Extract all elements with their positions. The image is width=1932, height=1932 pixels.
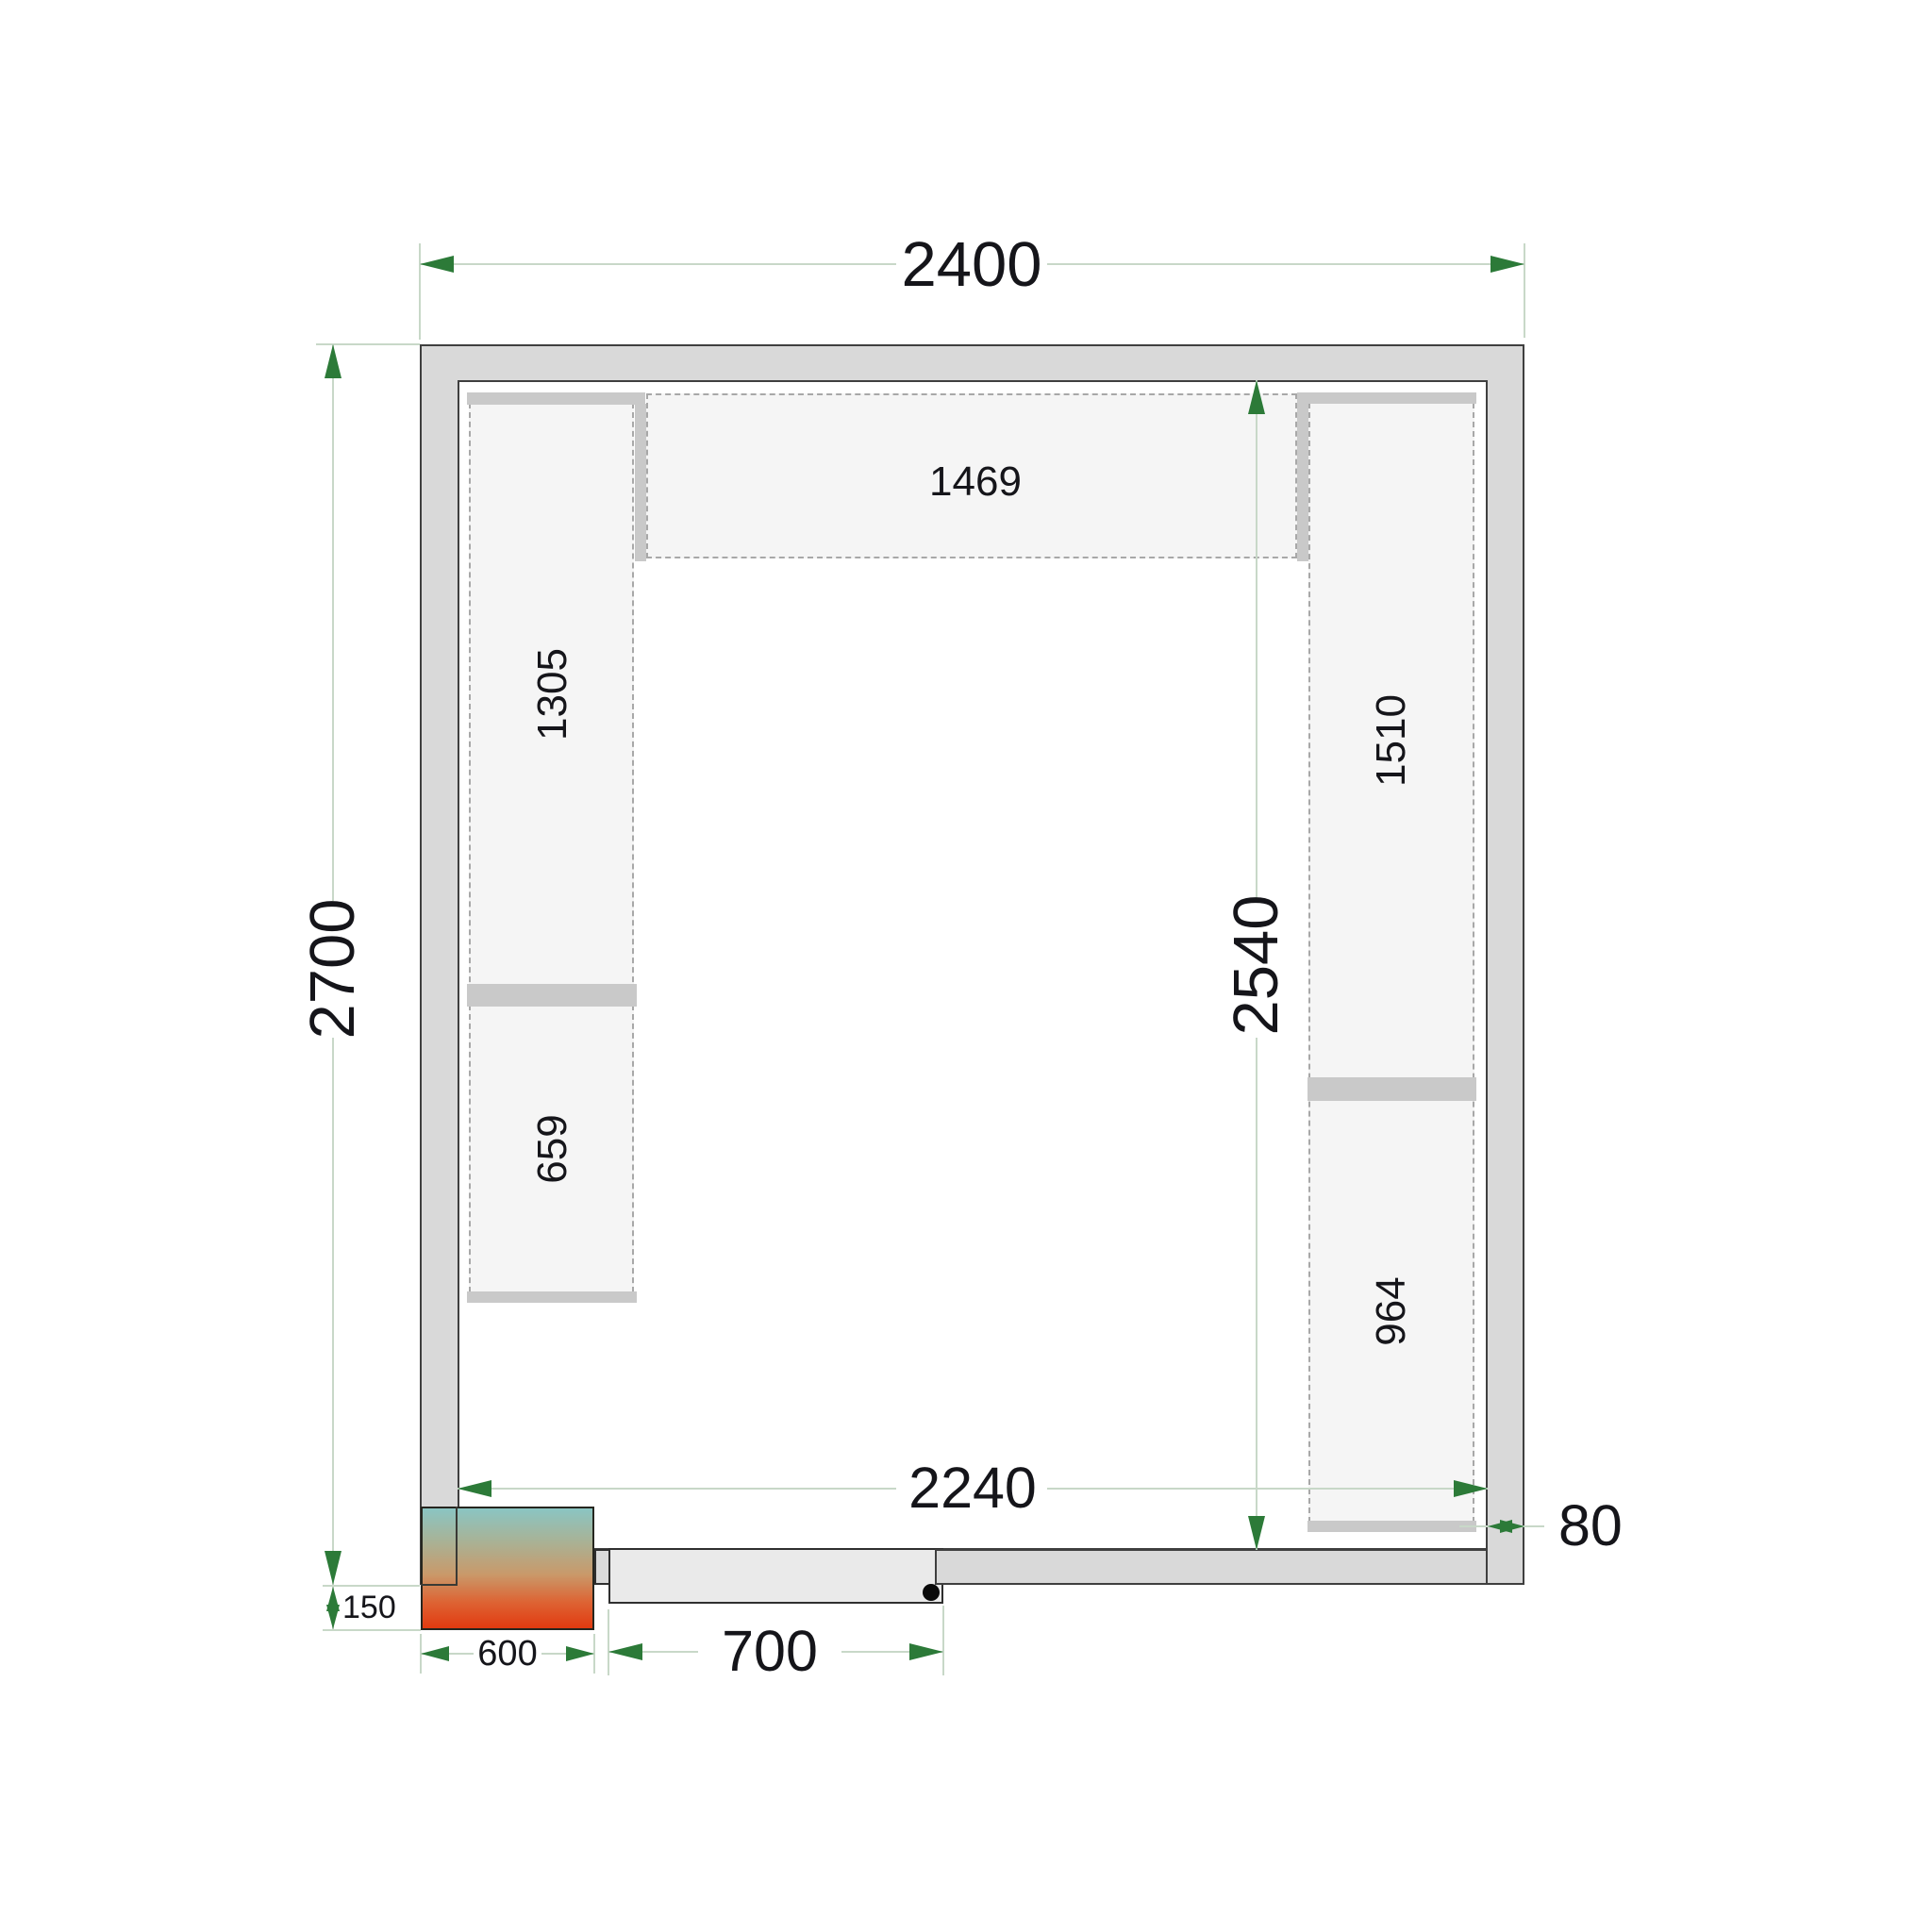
shelf-end-cap-right-top [1297,392,1476,404]
dim-2400-line-b [1047,263,1524,265]
wall-outline-over-unit-horizontal [421,1584,457,1586]
shelf-end-cap-left-bottom [467,1291,637,1303]
dim-700-label: 700 [675,1619,864,1683]
dim-2240-line-a [458,1488,896,1490]
shelf-divider-right [1307,1077,1476,1101]
door-leaf [608,1548,943,1604]
shelf-end-cap-top-left [635,404,646,561]
dim-600-label: 600 [460,1636,555,1672]
dim-2240-arrow-right [1454,1480,1488,1497]
dim-600-arrow-right [566,1646,594,1661]
shelf-end-cap-right-bottom [1307,1521,1476,1532]
dim-2700-line-b [332,1038,334,1585]
dim-2540-arrow-top [1248,380,1265,414]
dim-150-arrow-bottom [326,1605,340,1629]
shelf-right-upper-label: 1510 [1371,646,1412,835]
dim-80-arrow-right [1500,1520,1524,1533]
dim-2240-line-b [1047,1488,1488,1490]
shelf-right-lower-label: 964 [1371,1217,1412,1406]
wall-outline-over-unit-vertical [456,1507,458,1586]
shelf-divider-left [467,984,637,1007]
dim-2540-arrow-bottom [1248,1516,1265,1550]
dim-150-ext-bottom [323,1629,421,1631]
dim-2700-line-a [332,344,334,901]
dim-2240-arrow-left [458,1480,491,1497]
dim-2700-arrow-top [325,344,341,378]
dim-700-arrow-right [909,1643,943,1660]
shelf-left-lower-label: 659 [532,1055,574,1243]
shelf-left-upper-label: 1305 [532,600,574,789]
dim-2700-arrow-bottom [325,1551,341,1585]
cold-room-floor-plan: 1469 1305 659 1510 964 2400 2700 2540 22… [0,0,1932,1932]
dim-2400-arrow-left [420,256,454,273]
shelf-end-cap-top-right [1297,392,1308,561]
dim-150-label: 150 [342,1591,408,1624]
shelf-top-label: 1469 [881,461,1070,503]
cooling-unit [421,1507,594,1630]
dim-2540-line-b [1256,1038,1257,1550]
dim-80-label: 80 [1558,1493,1681,1557]
dim-2540-line-a [1256,380,1257,901]
dim-2400-arrow-right [1491,256,1524,273]
dim-2540-label: 2540 [1224,871,1288,1059]
dim-700-arrow-left [608,1643,642,1660]
dim-2240-label: 2240 [878,1456,1067,1520]
dim-600-arrow-left [421,1646,449,1661]
shelf-end-cap-left-top [467,392,645,405]
dim-2400-line-a [420,263,896,265]
dim-2400-label: 2400 [877,232,1066,296]
bottom-wall-right-segment [935,1549,1488,1585]
door-pivot-dot [923,1584,940,1601]
dim-700-ext-left [608,1609,609,1675]
dim-2700-label: 2700 [300,874,364,1063]
dim-700-ext-right [942,1606,944,1675]
